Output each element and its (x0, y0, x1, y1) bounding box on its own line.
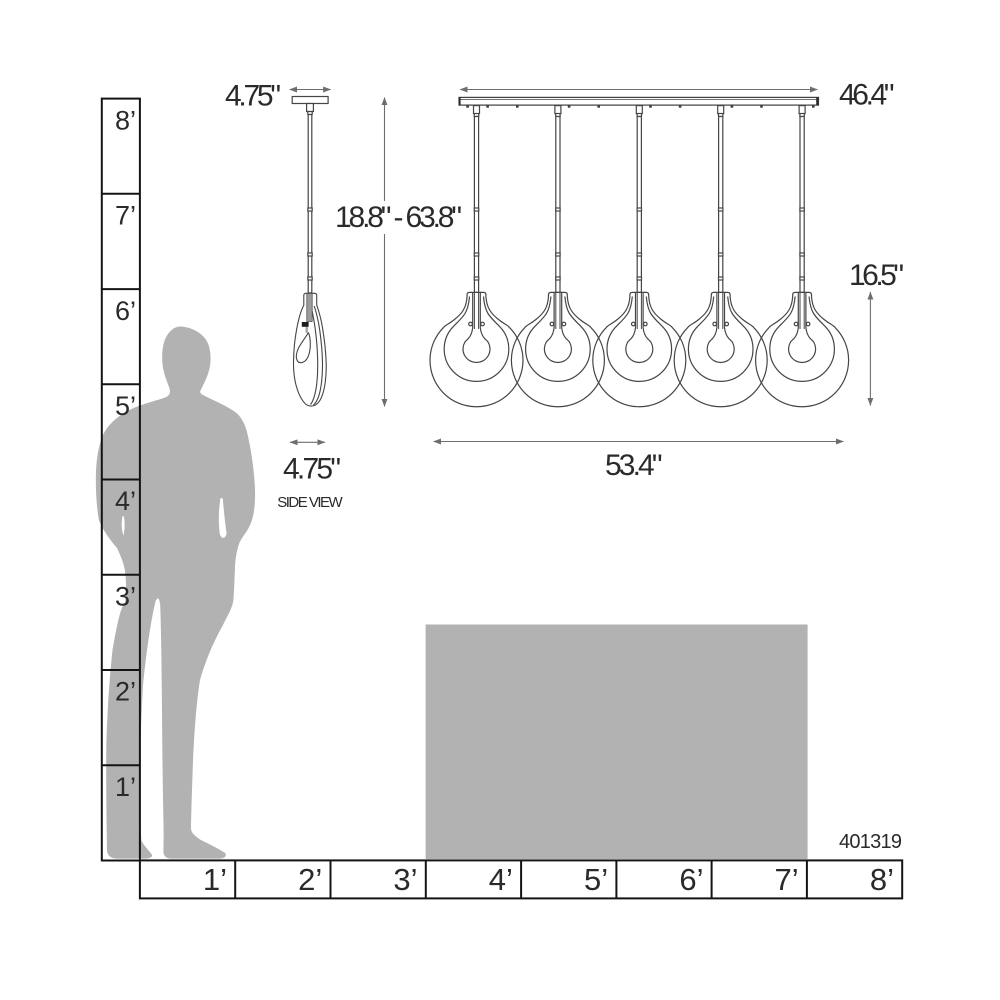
svg-text:1’: 1’ (203, 862, 227, 897)
svg-text:SIDE VIEW: SIDE VIEW (277, 494, 343, 511)
svg-text:4.75": 4.75" (283, 453, 341, 486)
svg-text:53.4": 53.4" (605, 449, 663, 482)
svg-text:46.4": 46.4" (839, 79, 895, 112)
svg-text:401319: 401319 (839, 831, 902, 853)
svg-text:8’: 8’ (870, 862, 894, 897)
svg-text:5’: 5’ (115, 391, 136, 421)
svg-text:18.8" - 63.8": 18.8" - 63.8" (335, 201, 462, 234)
svg-text:1’: 1’ (115, 772, 136, 802)
svg-text:16.5": 16.5" (849, 259, 904, 292)
svg-text:3’: 3’ (115, 582, 136, 612)
svg-text:4’: 4’ (115, 486, 136, 516)
svg-text:6’: 6’ (115, 296, 136, 326)
svg-text:6’: 6’ (679, 862, 703, 897)
svg-text:3’: 3’ (393, 862, 417, 897)
svg-text:2’: 2’ (298, 862, 322, 897)
svg-text:4’: 4’ (489, 862, 513, 897)
svg-text:7’: 7’ (775, 862, 799, 897)
svg-text:8’: 8’ (115, 105, 136, 135)
svg-text:4.75": 4.75" (225, 80, 281, 113)
svg-text:7’: 7’ (115, 201, 136, 231)
svg-text:5’: 5’ (584, 862, 608, 897)
svg-text:2’: 2’ (115, 677, 136, 707)
